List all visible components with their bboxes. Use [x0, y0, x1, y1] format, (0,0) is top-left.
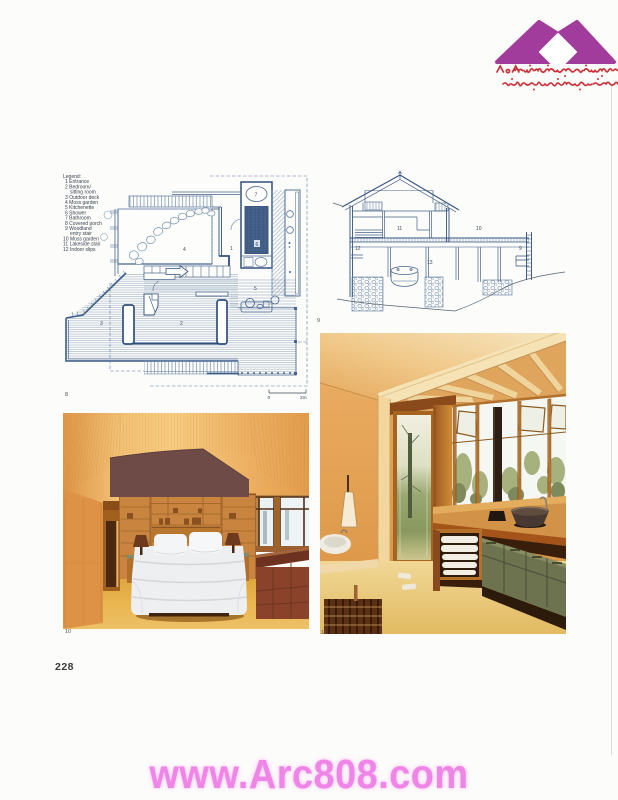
- svg-text:0: 0: [268, 395, 271, 401]
- svg-text:2m: 2m: [300, 395, 307, 401]
- svg-text:13: 13: [427, 260, 433, 266]
- svg-text:2: 2: [180, 321, 183, 327]
- svg-text:10: 10: [476, 226, 482, 232]
- svg-text:12 Indoor slips: 12 Indoor slips: [63, 247, 96, 253]
- svg-text:7: 7: [255, 193, 258, 199]
- svg-text:6: 6: [256, 242, 259, 248]
- svg-text:4: 4: [183, 247, 186, 253]
- svg-text:5: 5: [254, 286, 257, 292]
- svg-text:3: 3: [100, 321, 103, 327]
- svg-text:1: 1: [230, 246, 233, 252]
- svg-text:8: 8: [65, 392, 68, 398]
- svg-text:11: 11: [397, 226, 402, 232]
